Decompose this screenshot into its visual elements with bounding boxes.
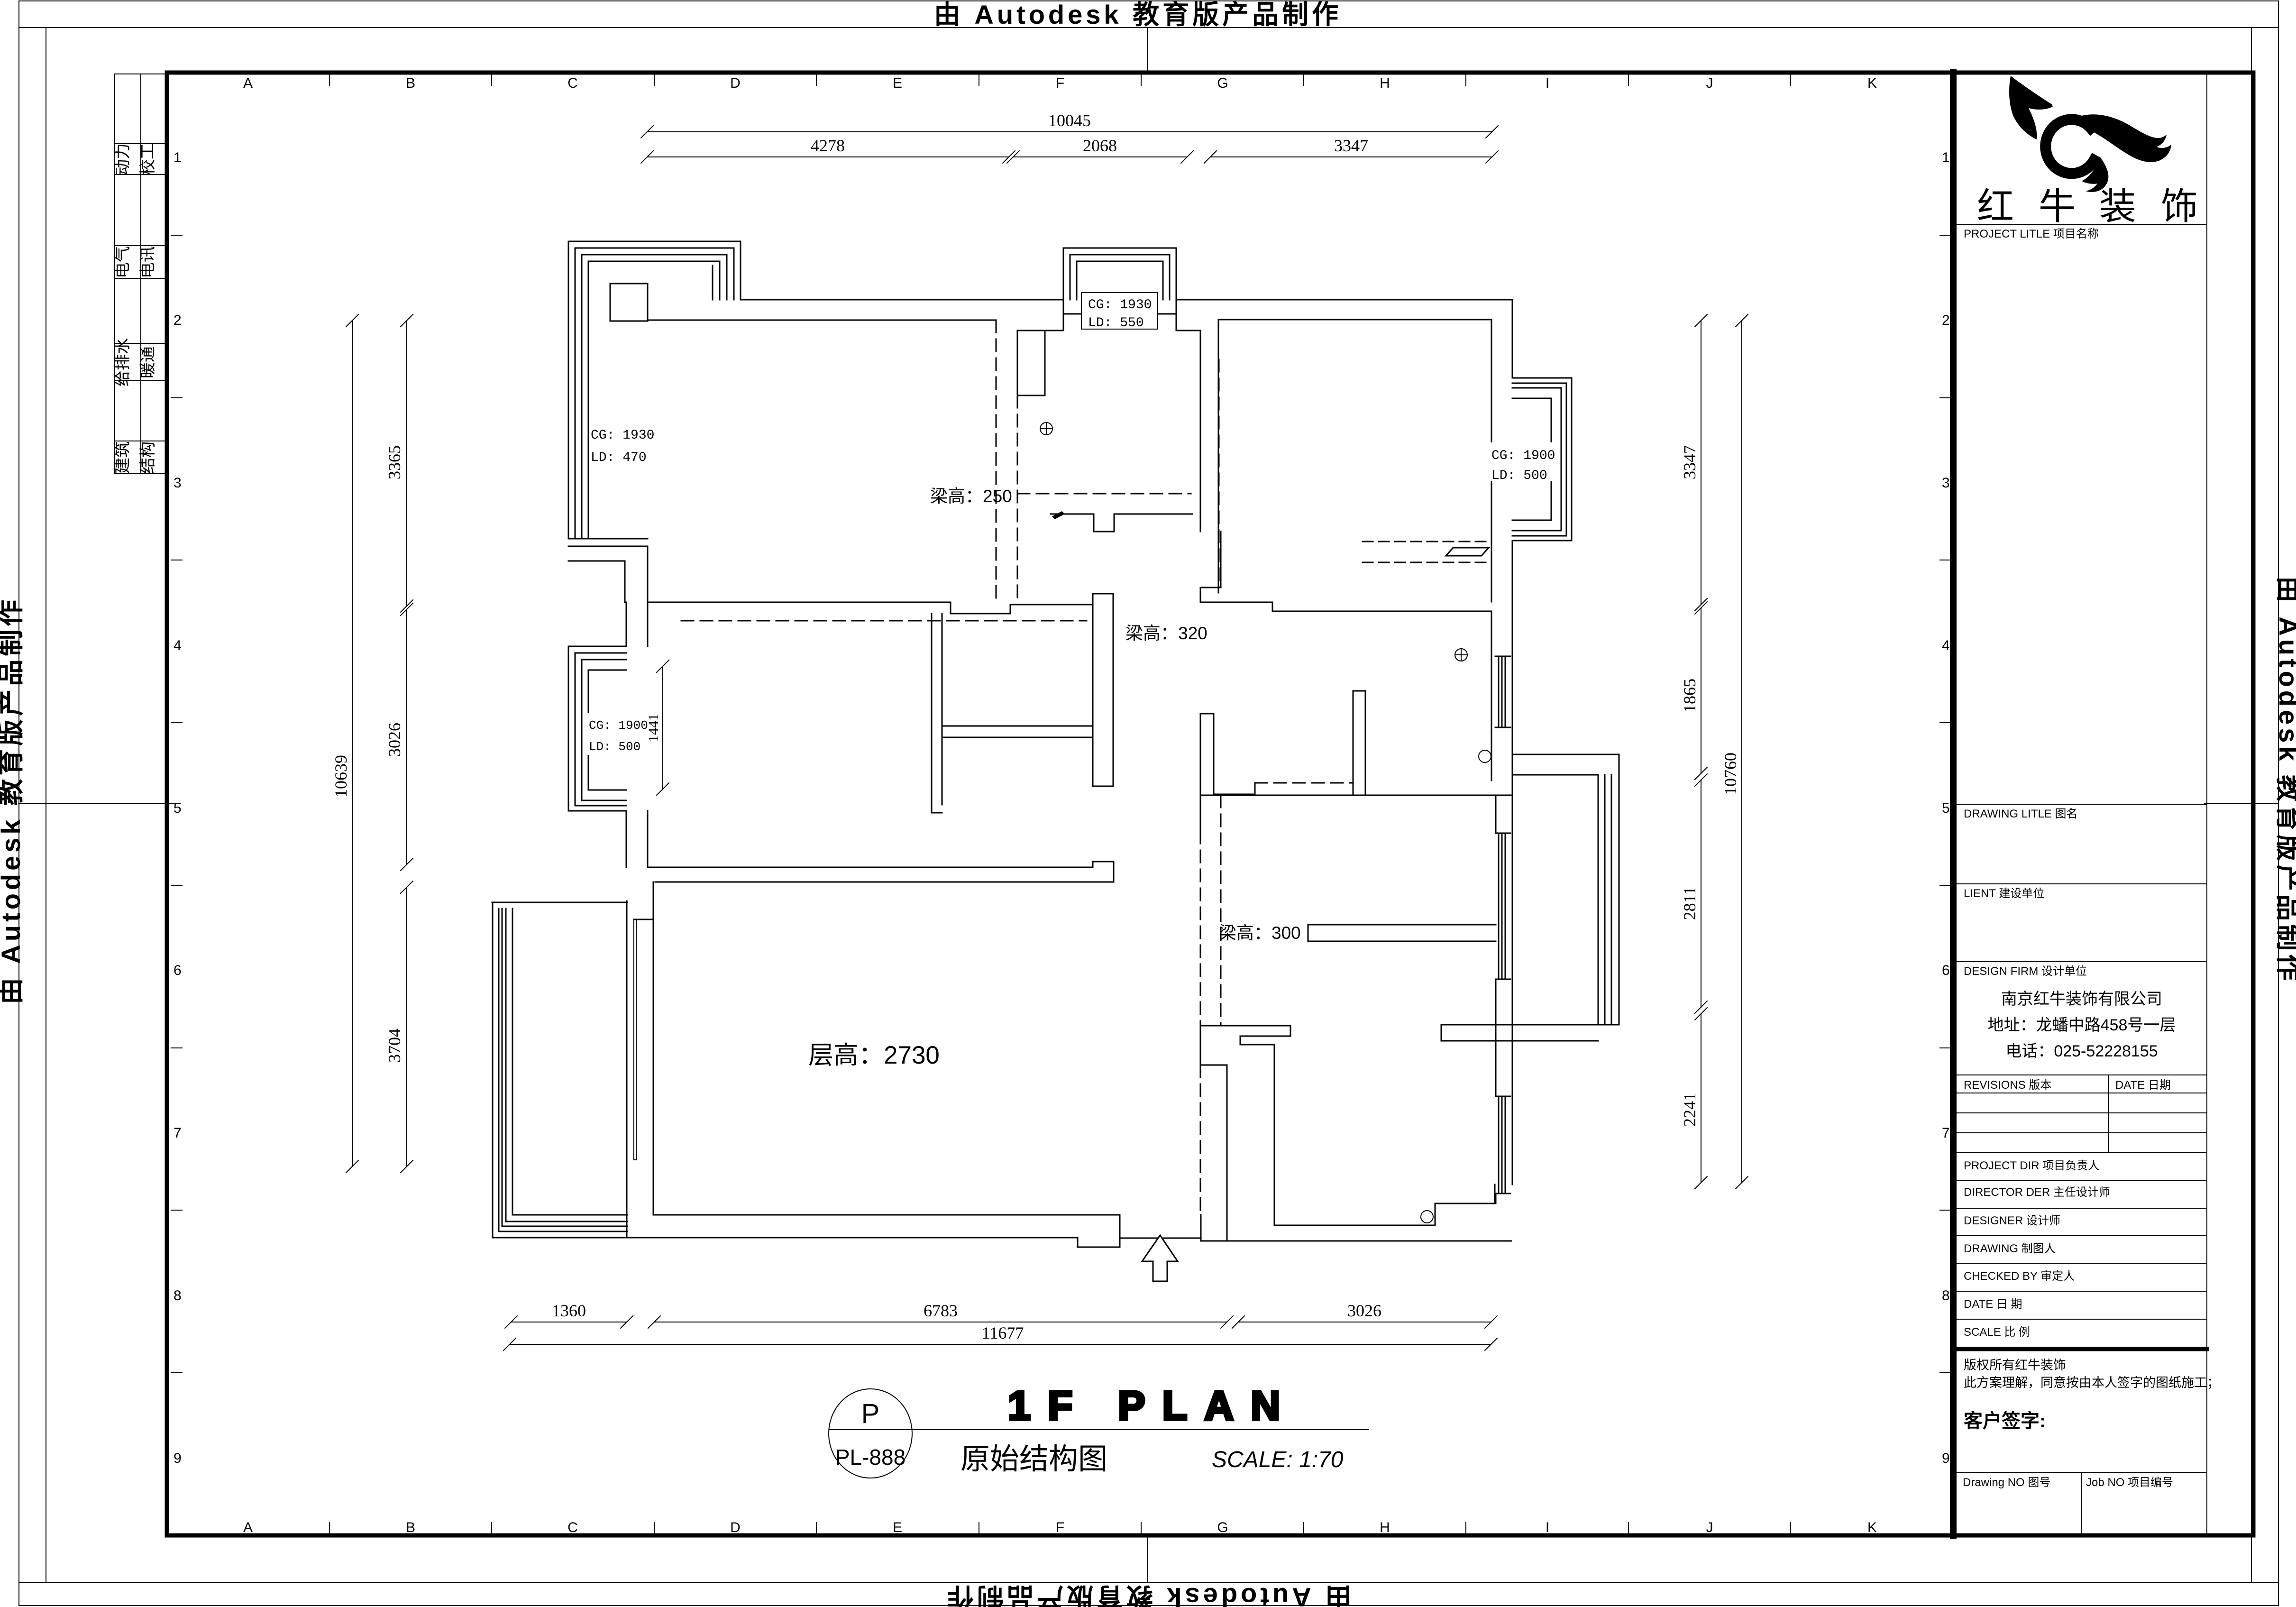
- svg-text:2068: 2068: [1083, 136, 1117, 155]
- svg-text:C: C: [567, 1520, 578, 1535]
- svg-text:3: 3: [174, 475, 182, 491]
- svg-text:5: 5: [1942, 800, 1950, 816]
- svg-text:G: G: [1217, 75, 1228, 91]
- svg-text:Job NO 项目编号: Job NO 项目编号: [2086, 1476, 2173, 1489]
- svg-text:CG: 1900: CG: 1900: [589, 718, 648, 733]
- svg-text:暖通: 暖通: [139, 346, 157, 378]
- svg-text:B: B: [406, 1520, 415, 1535]
- svg-text:LIENT 建设单位: LIENT 建设单位: [1964, 887, 2044, 900]
- svg-text:3: 3: [1942, 475, 1950, 491]
- svg-text:H: H: [1380, 1520, 1390, 1535]
- svg-text:1360: 1360: [552, 1301, 586, 1320]
- svg-text:K: K: [1867, 1520, 1877, 1535]
- svg-text:I: I: [1546, 1520, 1549, 1535]
- svg-text:由 Autodesk 教育版产品制作: 由 Autodesk 教育版产品制作: [944, 1582, 1352, 1607]
- svg-text:DRAWING 制图人: DRAWING 制图人: [1964, 1242, 2056, 1255]
- svg-text:LD: 470: LD: 470: [591, 450, 647, 465]
- svg-text:C: C: [567, 75, 578, 91]
- svg-text:10639: 10639: [331, 755, 350, 798]
- svg-text:I: I: [1546, 75, 1549, 91]
- svg-text:原始结构图: 原始结构图: [960, 1443, 1107, 1476]
- svg-text:LD: 500: LD: 500: [589, 740, 640, 754]
- svg-text:6: 6: [174, 963, 182, 978]
- svg-text:1: 1: [1942, 150, 1950, 165]
- svg-text:电气: 电气: [114, 246, 132, 278]
- svg-text:K: K: [1867, 75, 1877, 91]
- svg-text:饰: 饰: [2161, 185, 2198, 227]
- svg-text:建筑: 建筑: [114, 441, 132, 474]
- svg-text:PROJECT DIR 项目负责人: PROJECT DIR 项目负责人: [1964, 1159, 2099, 1172]
- svg-text:7: 7: [174, 1125, 182, 1141]
- svg-text:层高：2730: 层高：2730: [808, 1041, 940, 1069]
- svg-text:REVISIONS 版本: REVISIONS 版本: [1964, 1079, 2051, 1092]
- svg-text:由 Autodesk 教育版产品制作: 由 Autodesk 教育版产品制作: [934, 0, 1342, 29]
- svg-text:3347: 3347: [1334, 136, 1368, 155]
- svg-text:D: D: [730, 75, 741, 91]
- svg-text:装: 装: [2099, 185, 2136, 227]
- svg-text:版权所有红牛装饰: 版权所有红牛装饰: [1964, 1358, 2066, 1372]
- svg-text:DESIGNER 设计师: DESIGNER 设计师: [1964, 1214, 2060, 1227]
- svg-text:LD: 500: LD: 500: [1491, 468, 1547, 483]
- svg-text:F: F: [1056, 75, 1064, 91]
- svg-text:2: 2: [174, 312, 182, 328]
- svg-text:P: P: [861, 1398, 880, 1429]
- svg-text:客户签字:: 客户签字:: [1964, 1411, 2046, 1432]
- svg-text:梁高：250: 梁高：250: [930, 487, 1012, 506]
- svg-text:CG: 1930: CG: 1930: [591, 428, 654, 443]
- svg-text:梁高：320: 梁高：320: [1125, 624, 1207, 643]
- svg-text:A: A: [243, 1520, 253, 1535]
- svg-text:电话：025-52228155: 电话：025-52228155: [2005, 1042, 2158, 1060]
- svg-text:J: J: [1706, 75, 1713, 91]
- svg-text:SCALE 比 例: SCALE 比 例: [1964, 1326, 2030, 1339]
- svg-text:2811: 2811: [1680, 887, 1699, 920]
- svg-text:3026: 3026: [1347, 1301, 1381, 1320]
- svg-text:地址：龙蟠中路458号一层: 地址：龙蟠中路458号一层: [1988, 1016, 2176, 1034]
- svg-text:6783: 6783: [924, 1301, 958, 1320]
- svg-text:10760: 10760: [1721, 753, 1740, 795]
- svg-text:CG: 1900: CG: 1900: [1491, 449, 1555, 463]
- svg-text:D: D: [730, 1520, 741, 1535]
- svg-text:B: B: [406, 75, 415, 91]
- svg-text:11677: 11677: [982, 1323, 1024, 1342]
- svg-text:DIRECTOR DER 主任设计师: DIRECTOR DER 主任设计师: [1964, 1186, 2110, 1199]
- svg-text:梁高：300: 梁高：300: [1219, 923, 1301, 943]
- svg-text:1441: 1441: [646, 714, 661, 742]
- svg-text:DATE 日 期: DATE 日 期: [1964, 1298, 2022, 1311]
- svg-text:给排水: 给排水: [114, 338, 132, 386]
- svg-text:牛: 牛: [2039, 185, 2076, 227]
- svg-text:PL-888: PL-888: [835, 1445, 906, 1469]
- svg-text:3026: 3026: [385, 723, 404, 757]
- svg-text:Drawing NO 图号: Drawing NO 图号: [1963, 1476, 2050, 1489]
- svg-text:3347: 3347: [1680, 445, 1699, 479]
- svg-text:由 Autodesk 教育版产品制作: 由 Autodesk 教育版产品制作: [0, 597, 26, 1004]
- svg-text:E: E: [893, 75, 902, 91]
- svg-text:南京红牛装饰有限公司: 南京红牛装饰有限公司: [2001, 990, 2162, 1008]
- svg-text:1F PLAN: 1F PLAN: [1008, 1383, 1297, 1429]
- svg-text:J: J: [1706, 1520, 1713, 1535]
- svg-text:3365: 3365: [385, 445, 404, 479]
- svg-text:E: E: [893, 1520, 902, 1535]
- svg-text:CG: 1930: CG: 1930: [1088, 298, 1152, 312]
- svg-text:4: 4: [174, 638, 182, 653]
- svg-text:F: F: [1056, 1520, 1064, 1535]
- svg-text:LD: 550: LD: 550: [1088, 316, 1144, 331]
- svg-text:结构: 结构: [139, 441, 157, 474]
- svg-text:DRAWING LITLE 图名: DRAWING LITLE 图名: [1964, 808, 2077, 820]
- svg-text:由 Autodesk 教育版产品制作: 由 Autodesk 教育版产品制作: [2274, 576, 2296, 984]
- svg-text:1865: 1865: [1680, 679, 1699, 713]
- svg-text:动力: 动力: [114, 143, 132, 175]
- svg-text:PROJECT LITLE 项目名称: PROJECT LITLE 项目名称: [1964, 228, 2099, 240]
- svg-text:DESIGN FIRM 设计单位: DESIGN FIRM 设计单位: [1964, 965, 2087, 978]
- svg-text:DATE 日期: DATE 日期: [2115, 1079, 2171, 1092]
- svg-text:7: 7: [1942, 1125, 1950, 1141]
- svg-text:10045: 10045: [1048, 111, 1091, 130]
- svg-text:2: 2: [1942, 312, 1950, 328]
- svg-text:G: G: [1217, 1520, 1228, 1535]
- svg-text:5: 5: [174, 800, 182, 816]
- svg-text:9: 9: [1942, 1451, 1950, 1466]
- svg-text:A: A: [243, 75, 253, 91]
- svg-text:此方案理解，同意按由本人签字的图纸施工；: 此方案理解，同意按由本人签字的图纸施工；: [1964, 1376, 2220, 1390]
- svg-text:4278: 4278: [811, 136, 845, 155]
- svg-text:1: 1: [174, 150, 182, 165]
- svg-text:6: 6: [1942, 963, 1950, 978]
- svg-text:3704: 3704: [385, 1028, 404, 1063]
- svg-text:2241: 2241: [1680, 1093, 1699, 1127]
- svg-text:H: H: [1380, 75, 1390, 91]
- svg-text:8: 8: [174, 1288, 182, 1304]
- svg-text:SCALE: 1:70: SCALE: 1:70: [1212, 1447, 1344, 1472]
- svg-text:8: 8: [1942, 1288, 1950, 1304]
- svg-text:4: 4: [1942, 638, 1950, 653]
- svg-text:电讯: 电讯: [139, 246, 157, 278]
- svg-text:校工: 校工: [139, 143, 157, 175]
- svg-text:CHECKED BY 审定人: CHECKED BY 审定人: [1964, 1270, 2075, 1283]
- svg-text:红: 红: [1977, 185, 2014, 227]
- svg-text:9: 9: [174, 1451, 182, 1466]
